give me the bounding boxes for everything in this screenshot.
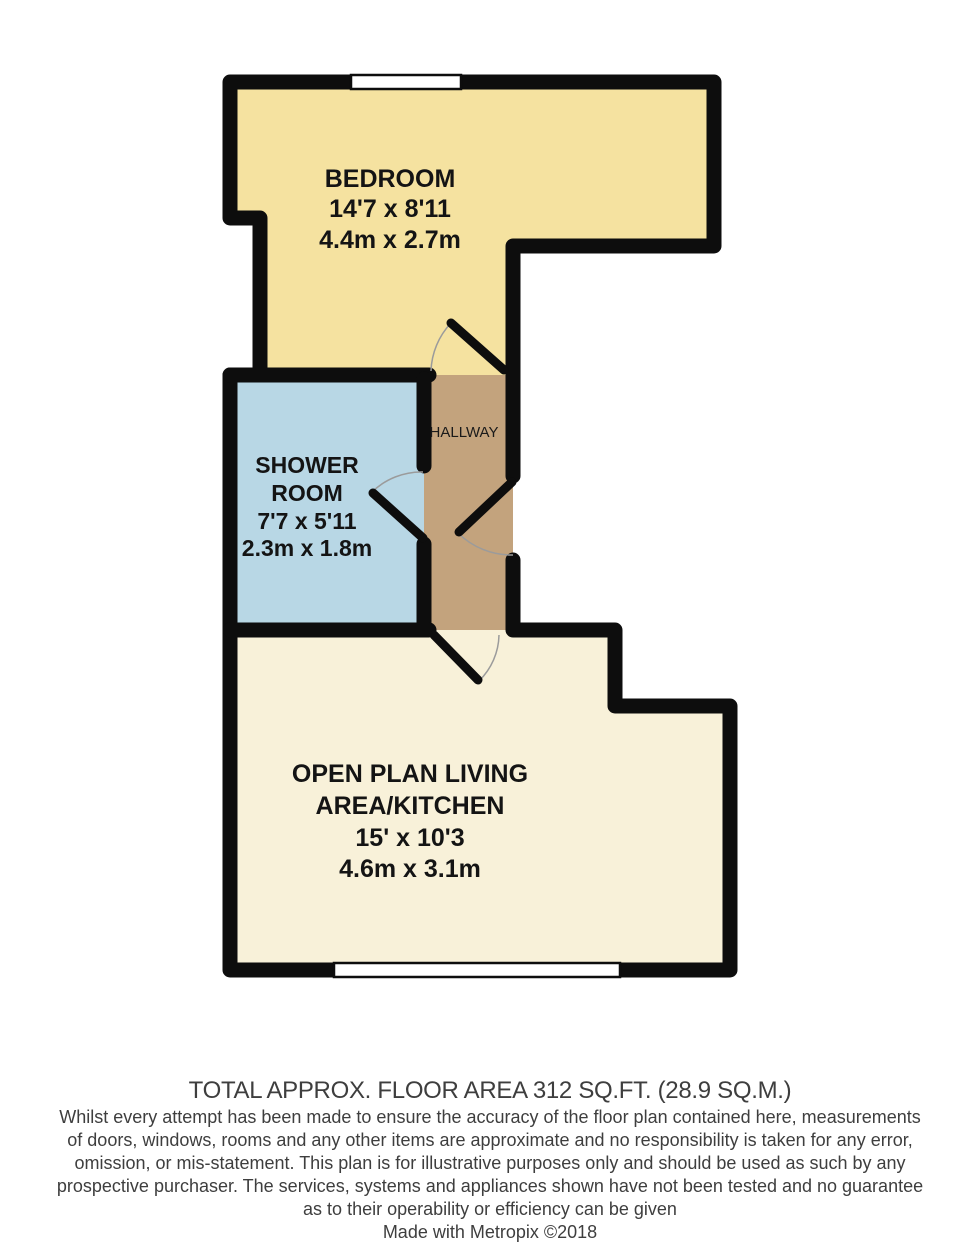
disclaimer-line: prospective purchaser. The services, sys… [0,1175,980,1198]
hallway-name-label: HALLWAY [430,424,499,441]
total-floor-area-text: TOTAL APPROX. FLOOR AREA 312 SQ.FT. (28.… [0,1076,980,1106]
shower-room-name-line2-label: ROOM [271,480,343,506]
floor-plan-drawing: BEDROOM 14'7 x 8'11 4.4m x 2.7m SHOWER R… [0,0,980,1020]
disclaimer-line: Whilst every attempt has been made to en… [0,1106,980,1129]
shower-room-size-imperial-label: 7'7 x 5'11 [257,508,356,534]
living-area-size-imperial-label: 15' x 10'3 [355,824,464,852]
living-area-name-line2-label: AREA/KITCHEN [316,792,505,820]
living-area-size-metric-label: 4.6m x 3.1m [339,855,481,883]
bedroom-name-label: BEDROOM [325,165,456,193]
footer: TOTAL APPROX. FLOOR AREA 312 SQ.FT. (28.… [0,1076,980,1243]
disclaimer: Whilst every attempt has been made to en… [0,1106,980,1221]
hallway-room [424,367,513,638]
floor-plan-page: BEDROOM 14'7 x 8'11 4.4m x 2.7m SHOWER R… [0,0,980,1255]
disclaimer-line: omission, or mis-statement. This plan is… [0,1152,980,1175]
bedroom-label-group: BEDROOM 14'7 x 8'11 4.4m x 2.7m [319,165,461,254]
bedroom-size-imperial-label: 14'7 x 8'11 [329,195,451,223]
bedroom-room [230,82,714,375]
shower-room-name-line1-label: SHOWER [255,452,359,478]
disclaimer-line: as to their operability or efficiency ca… [0,1198,980,1221]
bedroom-window [351,75,461,89]
shower-room-size-metric-label: 2.3m x 1.8m [242,535,372,561]
living-area-window [334,963,620,977]
living-area-name-line1-label: OPEN PLAN LIVING [292,760,528,788]
bedroom-size-metric-label: 4.4m x 2.7m [319,226,461,254]
credit-text: Made with Metropix ©2018 [0,1221,980,1243]
disclaimer-line: of doors, windows, rooms and any other i… [0,1129,980,1152]
